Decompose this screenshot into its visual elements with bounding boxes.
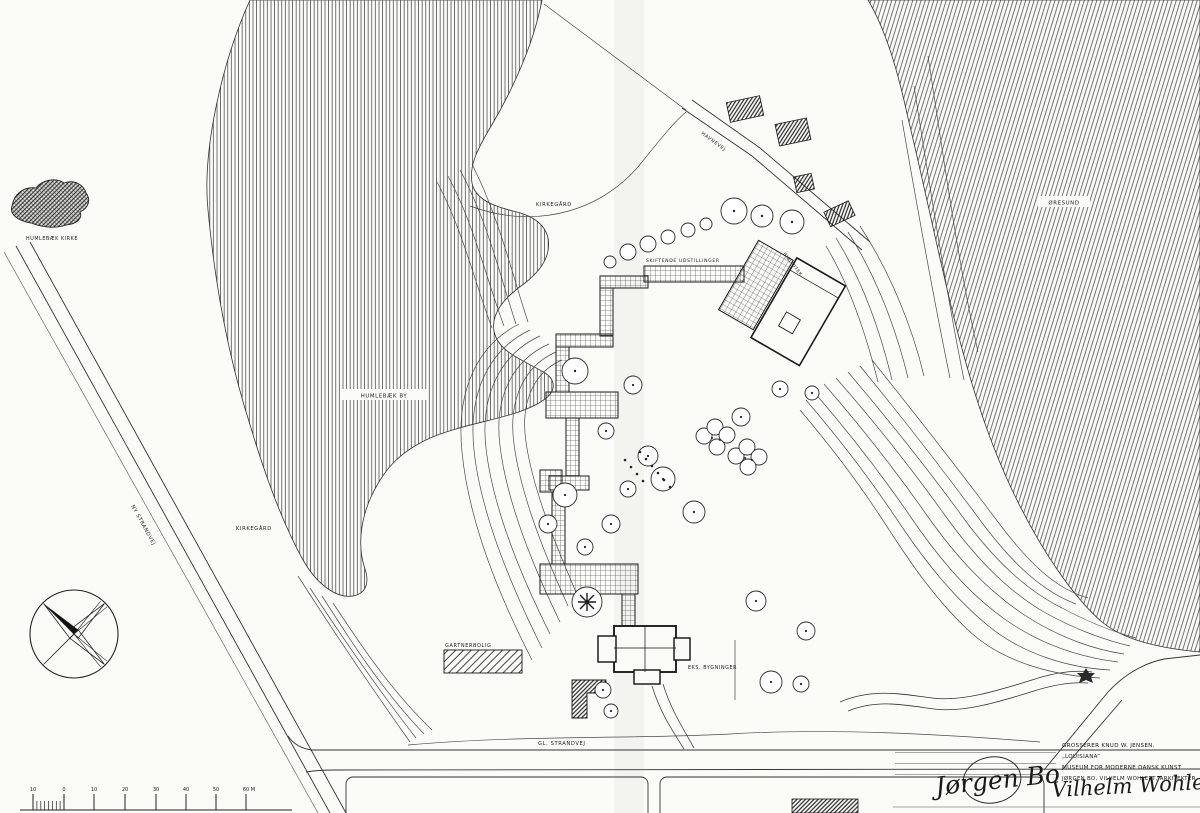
humlebaek-kirke-label: HUMLEBÆK KIRKE	[26, 236, 78, 242]
scale-tick-label: 0	[62, 787, 65, 793]
glass-corridor	[600, 288, 613, 336]
scale-tick-label: 20	[122, 787, 128, 793]
eks-bygninger-label: EKS. BYGNINGER	[688, 665, 737, 671]
kirkegaard-west-label: KIRKEGÅRD	[236, 525, 272, 532]
north-gallery-wing	[644, 266, 744, 282]
title-project-name: „LOUISIANA”	[1062, 754, 1100, 760]
scale-tick-label: 10	[91, 787, 97, 793]
gl-strandvej-label: GL. STRANDVEJ	[538, 741, 586, 747]
gartnerbolig-label: GARTNERBOLIG	[445, 643, 491, 649]
scale-tick-label: 30	[153, 787, 159, 793]
flower-tree-icon	[572, 587, 602, 617]
oresund-label: ØRESUND	[1048, 200, 1079, 207]
title-subtitle: MUSEUM FOR MODERNE DANSK KUNST	[1062, 765, 1182, 771]
scale-tick-label: 60 M	[243, 787, 255, 793]
site-plan-sheet: ØRESUND HUMLEBÆK BY HUMLEBÆK KIRKE NY ST…	[0, 0, 1200, 813]
middle-gallery	[546, 392, 618, 418]
kirkegaard-top-label: KIRKEGÅRD	[536, 201, 572, 208]
humlebaek-by-label: HUMLEBÆK BY	[361, 394, 408, 400]
skiftende-udstillinger-label: SKIFTENDE UDSTILLINGER	[646, 258, 720, 264]
scale-tick-label: 40	[183, 787, 189, 793]
outbuilding	[792, 799, 858, 813]
site-plan-drawing: ØRESUND HUMLEBÆK BY HUMLEBÆK KIRKE NY ST…	[0, 0, 1200, 813]
title-owner: GROSSERER KNUD W. JENSEN.	[1062, 743, 1155, 749]
scale-tick-label: 10	[30, 787, 36, 793]
scale-tick-label: 50	[213, 787, 219, 793]
gartnerbolig-building	[444, 650, 522, 673]
